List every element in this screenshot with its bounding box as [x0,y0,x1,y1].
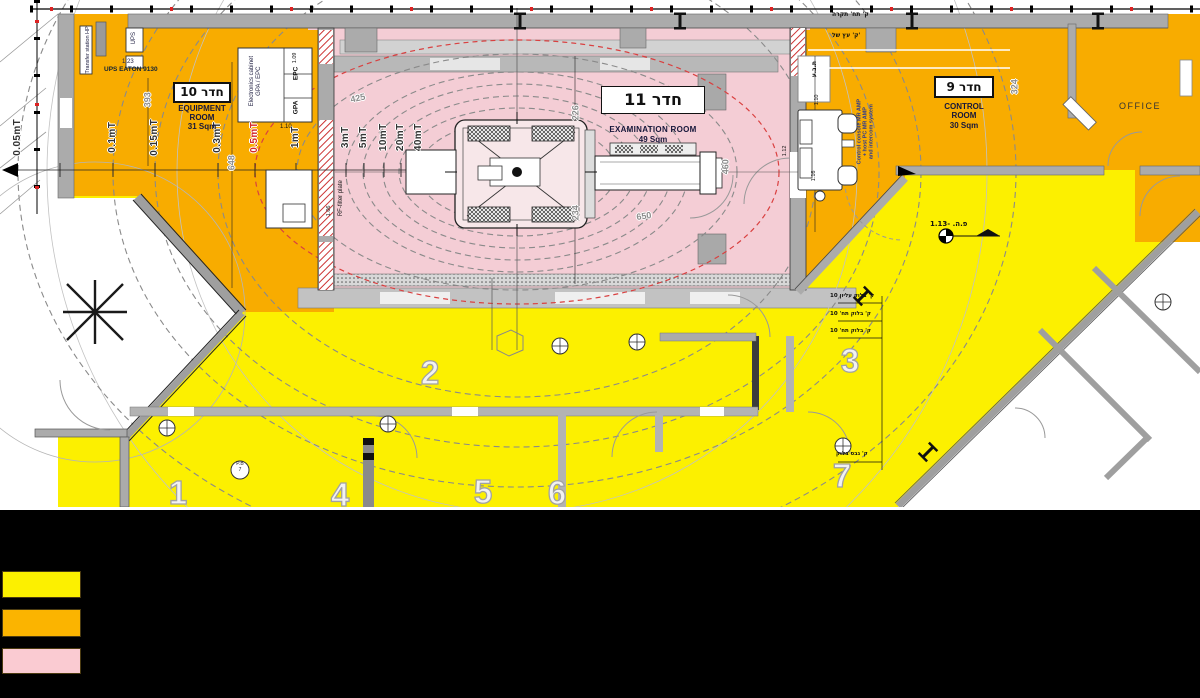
hebrew-note: ק' בלוק עליון 10 [830,294,874,300]
level-marker-label: פ.ה. -1.13 [930,221,1000,228]
epc-label: EPC [294,58,301,88]
ups-box-label: UPS [131,23,137,53]
legend-swatch-pink [2,648,81,674]
dimension-label: 460 [721,147,730,187]
electronics-cabinet-label: Electronics cabinet GPA / EPC [249,43,263,119]
tag-1-16: 1.16 [812,161,818,191]
zone-number: 1 [158,476,198,507]
zone-number: 2 [410,356,450,391]
room-11-tag: 11 חדר [601,86,705,114]
hebrew-note: ת.ב.ע [812,54,818,84]
zone-number: 4 [320,478,360,507]
room-9-area: 30 Sqm [925,122,1003,130]
room-11-area: 49 Sqm [592,136,714,144]
contour-label: 5mT [359,107,370,167]
room-9-tag: 9 חדר [934,76,994,98]
hebrew-note: ק' גבס בלוק [836,452,868,458]
tag-1-12: 1.12 [783,136,789,166]
contour-label: 3mT [341,107,352,167]
dimension-label: 393 [143,80,152,120]
zone-number: 7 [822,459,862,494]
tag-1-10: 1.10 [280,124,292,130]
tag-1-10b: 1.10 [815,85,821,115]
tag-1-23: 1.23 [122,59,134,65]
hebrew-note: ק' בלוק תח' 10 [830,329,871,335]
mri-floor-plan-page: { "plan": { "rooms": { "equipment": {"ta… [0,0,1200,698]
dimension-label: 324 [1010,67,1019,107]
room-10-area: 31 Sqm [163,123,241,131]
legend-swatch-yellow [2,571,81,598]
hebrew-note: ק' תח' תקרה [832,12,869,18]
ups-eaton-label: UPS EATON 9130 [104,67,158,74]
legend-panel [0,510,1200,698]
zone-number: 6 [537,476,577,507]
room-9-name-line2: ROOM [925,112,1003,120]
zone-number: 3 [830,344,870,379]
contour-label: 0.05mT [13,107,24,167]
control-console-label: Control console MR AMP + host PC MR AMP … [857,80,874,184]
contour-label: 0.1mT [108,107,119,167]
dimension-label: 226 [571,93,580,133]
contour-label: 20mT [396,107,407,167]
door-tag-pb: P.B 7 [228,462,252,473]
star-symbol [63,280,127,344]
tag-1-06: 1.06 [327,196,333,226]
office-label: OFFICE [1100,102,1180,111]
rf-filter-plate-label: RF-filter plate [338,163,344,233]
floor-plan-canvas: 0.05mT0.1mT0.15mT0.3mT0.5mT1mT3mT5mT10mT… [0,0,1200,507]
contour-label: 40mT [414,107,425,167]
room-10-tag: 10 חדר [173,82,231,103]
zone-orange-lower-right [1135,170,1200,242]
dimension-label: 234 [571,193,580,233]
room-11-name: EXAMINATION ROOM [592,126,714,134]
gpa-label: GPA [294,92,301,122]
legend-swatch-orange [2,609,81,637]
transfer-station-label: Transfer station HP [86,15,92,85]
floor-plan-drawing [0,0,1200,507]
contour-label: 10mT [379,107,390,167]
dimension-label: 648 [227,143,236,183]
hebrew-note: ק' בלוק תח' 10 [830,312,871,318]
hebrew-note: ק' עץ של' [832,33,860,39]
zone-number: 5 [463,475,503,507]
zone-fills [0,0,1200,507]
